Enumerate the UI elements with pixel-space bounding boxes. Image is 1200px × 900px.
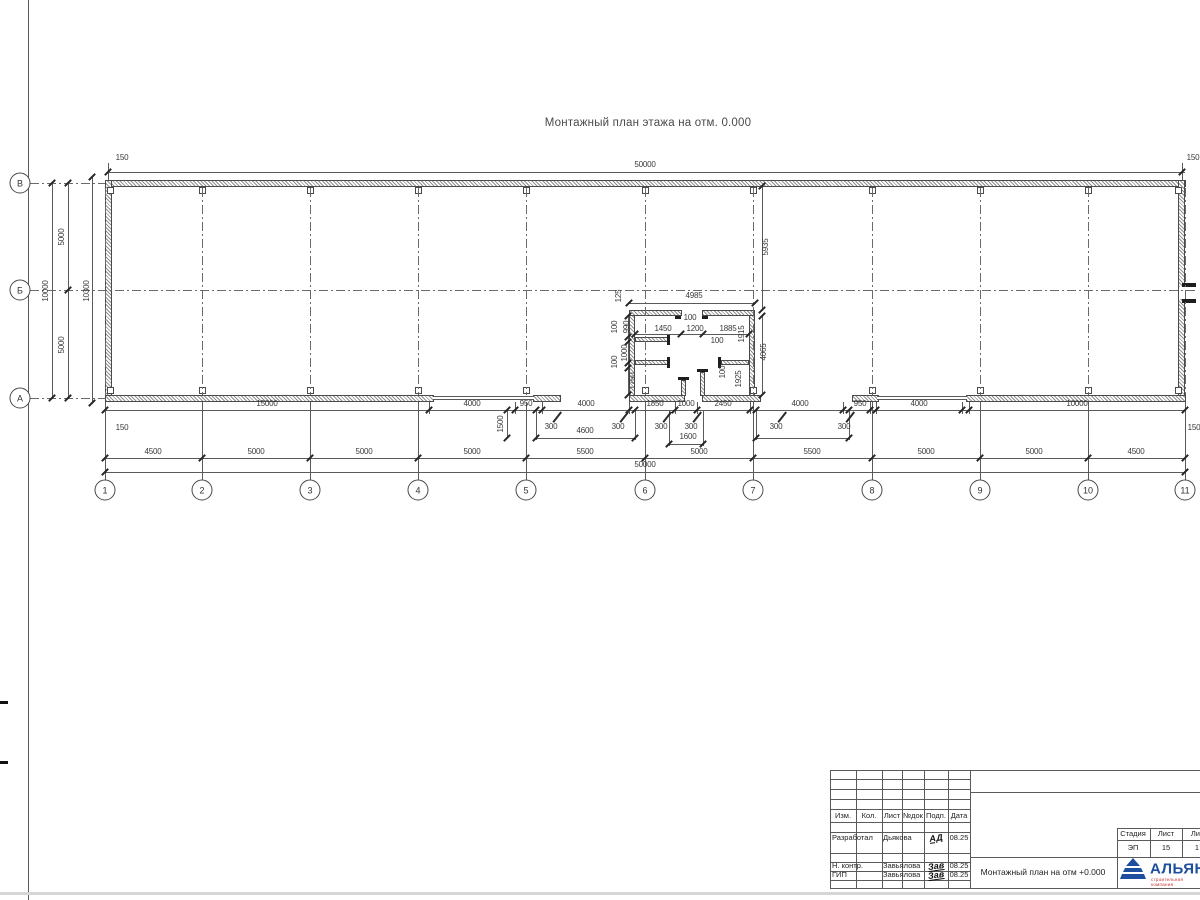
titleblock-line — [970, 792, 1200, 793]
titleblock-line — [830, 822, 970, 823]
dim-line — [669, 444, 703, 445]
dim-extension — [52, 183, 53, 398]
wall — [702, 395, 761, 402]
wall — [700, 372, 705, 396]
dim-label: 100 — [719, 366, 727, 379]
fold-mark — [0, 761, 8, 764]
titleblock-line — [1182, 828, 1183, 857]
dim-label: 50000 — [634, 461, 655, 469]
axis-bubble-left: В — [10, 173, 31, 194]
fold-mark — [0, 701, 8, 704]
dim-label: 5000 — [356, 448, 373, 456]
dim-label: 1885 — [720, 325, 737, 333]
dim-label: 1500 — [497, 416, 505, 433]
titleblock-line — [830, 853, 970, 854]
dim-label: 1450 — [655, 325, 672, 333]
titleblock-header: Лист — [884, 812, 900, 820]
titleblock-role: Н. контр. — [832, 862, 863, 870]
dim-label: 5000 — [1026, 448, 1043, 456]
partition-cap — [667, 334, 670, 345]
dim-tick — [631, 434, 639, 442]
axis-guide — [310, 402, 311, 480]
titleblock-name: Завьялова — [883, 871, 920, 879]
axis-guide — [418, 402, 419, 480]
axis-bubble-label: 11 — [1180, 485, 1189, 495]
axis-bubble-label: 6 — [642, 485, 647, 495]
dim-label: 1200 — [687, 325, 704, 333]
titleblock-line — [1117, 840, 1200, 841]
axis-guide — [526, 402, 527, 480]
stage-label: Стадия — [1120, 830, 1146, 838]
doc-title: Монтажный план на отм +0.000 — [981, 868, 1106, 876]
dim-tick — [758, 391, 766, 399]
dim-label: 4000 — [911, 400, 928, 408]
axis-center-line — [1185, 188, 1186, 395]
wall — [721, 360, 749, 365]
axis-bubble-label: 5 — [523, 485, 528, 495]
titleblock-header: Изм. — [835, 812, 851, 820]
drawing-sheet: Монтажный план этажа на отм. 0.000 50000… — [0, 0, 1200, 900]
dim-label: 4000 — [578, 400, 595, 408]
dim-label: 5935 — [762, 239, 770, 256]
titleblock-header: Кол. — [862, 812, 877, 820]
dim-label: 4500 — [145, 448, 162, 456]
dim-label: 1915 — [738, 326, 746, 343]
axis-center-line — [1088, 188, 1089, 395]
dim-label: 300 — [685, 423, 698, 431]
dim-label: 5000 — [464, 448, 481, 456]
titleblock-date: 08.25 — [950, 862, 969, 870]
dim-label: 10000 — [42, 280, 50, 301]
titleblock-role: ГИП — [832, 871, 847, 879]
axis-bubble-bottom: 10 — [1078, 480, 1099, 501]
leader-line — [777, 411, 786, 422]
dim-line — [756, 438, 849, 439]
dim-label: 990 — [623, 321, 631, 334]
dim-label: 1600 — [680, 433, 697, 441]
axis-bubble-label: 4 — [415, 485, 420, 495]
axis-guide — [1088, 402, 1089, 480]
axis-bubble-label: 8 — [869, 485, 874, 495]
dim-label: 5500 — [577, 448, 594, 456]
dim-label: 1850 — [647, 400, 664, 408]
dim-label: 10000 — [1066, 400, 1087, 408]
titleblock-name: Дьякова — [883, 834, 912, 842]
wall — [635, 337, 669, 342]
dim-label: 4065 — [760, 344, 768, 361]
titleblock-line — [830, 888, 1200, 889]
wall — [105, 180, 112, 402]
stage-value: ЭП — [1128, 844, 1139, 852]
axis-bubble-bottom: 11 — [1175, 480, 1196, 501]
dim-label: 300 — [838, 423, 851, 431]
titleblock-header: №док — [903, 812, 923, 820]
logo-subtext: строительная компания — [1151, 877, 1200, 887]
axis-bubble-bottom: 6 — [635, 480, 656, 501]
axis-center-line — [753, 188, 754, 395]
dim-label: 1750 — [629, 373, 637, 390]
axis-bubble-label: 1 — [102, 485, 107, 495]
dim-label: 5000 — [58, 229, 66, 246]
titleblock-name: Завьялова — [883, 862, 920, 870]
axis-bubble-bottom: 2 — [192, 480, 213, 501]
dim-line — [536, 438, 635, 439]
axis-center-line — [980, 188, 981, 395]
dim-label: 4000 — [792, 400, 809, 408]
axis-bubble-label: А — [17, 393, 23, 403]
dim-label: 5000 — [918, 448, 935, 456]
wall — [533, 395, 561, 402]
titleblock-header: Подп. — [926, 812, 946, 820]
axis-bubble-bottom: 9 — [970, 480, 991, 501]
leader-line — [619, 411, 628, 422]
partition-cap — [667, 357, 670, 368]
axis-bubble-label: 9 — [977, 485, 982, 495]
leader-line — [552, 411, 561, 422]
partition-cap — [702, 316, 708, 319]
partition-cap — [697, 369, 708, 372]
dim-label: 10300 — [83, 280, 91, 301]
titleblock-line — [970, 770, 971, 888]
axis-center-line — [872, 188, 873, 395]
dim-label: 4500 — [1128, 448, 1145, 456]
titleblock-line — [830, 770, 831, 888]
dim-label: 5000 — [58, 337, 66, 354]
titleblock-line — [830, 770, 1200, 771]
axis-guide — [980, 402, 981, 480]
wall — [702, 310, 755, 316]
dim-label: 950 — [520, 400, 533, 408]
dim-label: 300 — [655, 423, 668, 431]
titleblock-line — [924, 770, 925, 888]
dim-label: 300 — [770, 423, 783, 431]
titleblock-line — [856, 770, 857, 888]
dim-tick — [845, 434, 853, 442]
dim-label: 100 — [711, 337, 724, 345]
signature: АД — [929, 832, 944, 844]
dim-tick — [503, 434, 511, 442]
titleblock-line — [830, 779, 970, 780]
axis-bubble-label: 3 — [307, 485, 312, 495]
dim-label: 300 — [612, 423, 625, 431]
dim-extension — [92, 177, 93, 403]
wall — [105, 180, 1186, 187]
dim-label: 150 — [116, 154, 129, 162]
titleblock-role: Разработал — [832, 834, 873, 842]
dim-label: 950 — [854, 400, 867, 408]
dim-label: 5000 — [691, 448, 708, 456]
axis-center-line — [418, 188, 419, 395]
axis-bubble-bottom: 7 — [743, 480, 764, 501]
dim-tick — [88, 399, 96, 407]
column-marker — [1175, 187, 1182, 194]
titleblock-header: Дата — [951, 812, 968, 820]
dim-label: 100 — [684, 314, 697, 322]
dim-label: 150 — [1188, 424, 1200, 432]
axis-bubble-label: 7 — [750, 485, 755, 495]
axis-bubble-left: Б — [10, 280, 31, 301]
column-marker — [107, 187, 114, 194]
titleblock-line — [830, 799, 970, 800]
axis-bubble-bottom: 4 — [408, 480, 429, 501]
sheet-bottom-edge — [0, 892, 1200, 895]
plan-title: Монтажный план этажа на отм. 0.000 — [545, 117, 751, 129]
partition-cap — [675, 316, 681, 319]
wall — [681, 380, 686, 396]
sheets-label: Листов — [1191, 830, 1200, 838]
titleblock-line — [830, 789, 970, 790]
dim-label: 100 — [611, 321, 619, 334]
dim-label: 4985 — [686, 292, 703, 300]
titleblock-line — [1150, 828, 1151, 857]
axis-bubble-bottom: 1 — [95, 480, 116, 501]
titleblock-line — [830, 809, 970, 810]
axis-center-line — [526, 188, 527, 395]
column-marker — [1175, 387, 1182, 394]
dim-label: 150 — [116, 424, 129, 432]
dim-label: 50000 — [634, 161, 655, 169]
dim-line — [108, 172, 1185, 173]
frame-left-line — [28, 0, 29, 900]
axis-bubble-bottom: 8 — [862, 480, 883, 501]
logo-text: АЛЬЯНС — [1150, 861, 1200, 878]
axis-bubble-label: 2 — [199, 485, 204, 495]
dim-label: 2450 — [715, 400, 732, 408]
axis-center-line — [310, 188, 311, 395]
sheets-value: 1 — [1195, 844, 1199, 852]
wall — [749, 310, 755, 396]
dim-label: 300 — [545, 423, 558, 431]
titleblock-line — [1117, 828, 1118, 888]
axis-bubble-bottom: 5 — [516, 480, 537, 501]
partition-cap — [678, 377, 689, 380]
dim-label: 5500 — [804, 448, 821, 456]
logo-triangle-icon — [1120, 858, 1146, 882]
sheet-value: 15 — [1162, 844, 1170, 852]
dim-label: 1000 — [621, 345, 629, 362]
dim-label: 15000 — [256, 400, 277, 408]
dim-label: 5000 — [248, 448, 265, 456]
dim-label: 4000 — [464, 400, 481, 408]
dim-label: 1000 — [678, 400, 695, 408]
column-marker — [107, 387, 114, 394]
axis-bubble-label: 10 — [1083, 485, 1093, 495]
axis-center-line — [645, 188, 646, 395]
dim-label: 100 — [611, 356, 619, 369]
dim-label: 150 — [1187, 154, 1200, 162]
titleblock-date: 08.25 — [950, 834, 969, 842]
titleblock-date: 08.25 — [950, 871, 969, 879]
axis-center-line — [202, 188, 203, 395]
leader-line — [662, 411, 671, 422]
axis-bubble-left: А — [10, 388, 31, 409]
dim-line — [635, 334, 749, 335]
axis-guide — [202, 402, 203, 480]
axis-bubble-label: Б — [17, 285, 23, 295]
wall — [635, 360, 669, 365]
sheet-label: Лист — [1158, 830, 1174, 838]
dim-line — [629, 303, 755, 304]
axis-bubble-bottom: 3 — [300, 480, 321, 501]
dim-label: 4600 — [577, 427, 594, 435]
axis-center-line — [105, 188, 106, 395]
titleblock-line — [830, 880, 970, 881]
axis-bubble-label: В — [17, 178, 23, 188]
dim-label: 125 — [615, 290, 623, 303]
dim-label: 1925 — [735, 371, 743, 388]
